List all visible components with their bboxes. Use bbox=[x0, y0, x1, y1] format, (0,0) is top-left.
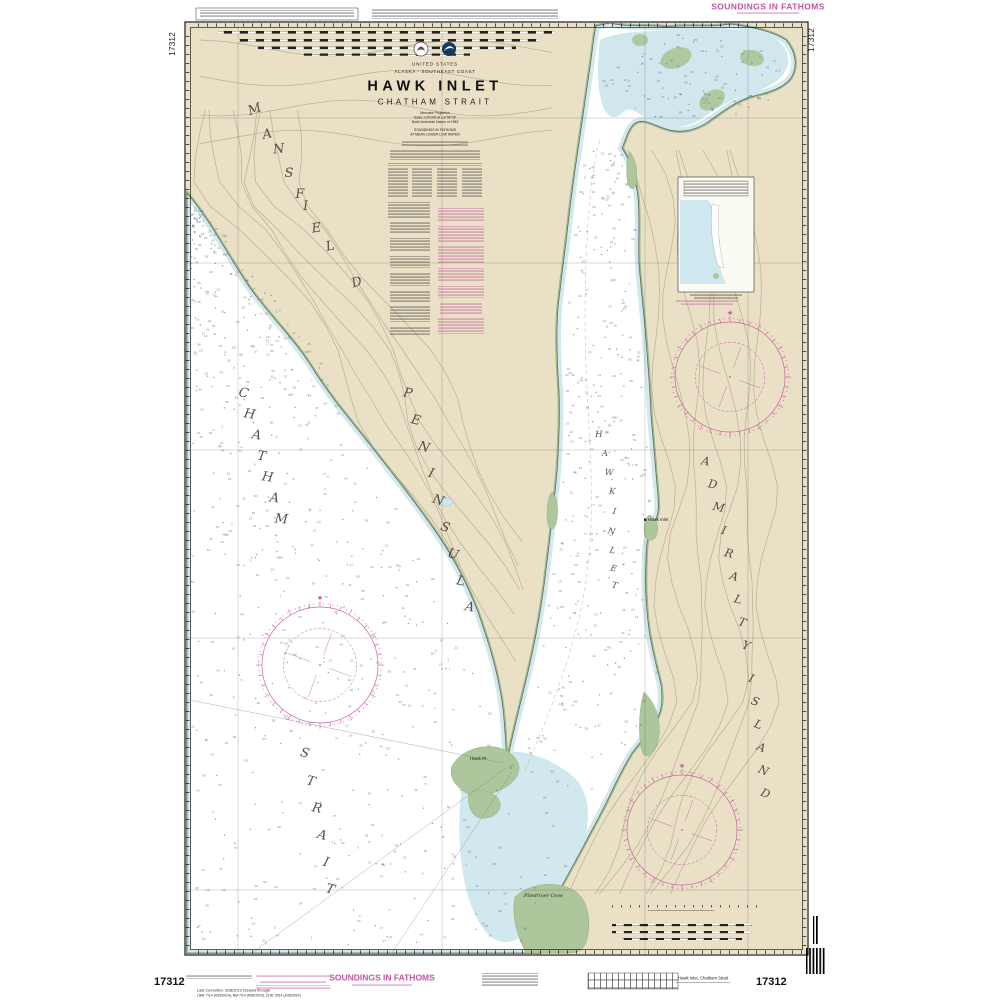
sounding: 34 bbox=[312, 581, 316, 585]
sounding bbox=[293, 478, 294, 479]
sounding bbox=[233, 367, 234, 368]
sounding bbox=[194, 301, 195, 302]
sounding: 42 bbox=[433, 692, 437, 696]
sounding: 13 bbox=[592, 654, 596, 658]
sounding bbox=[558, 688, 559, 689]
sounding bbox=[405, 871, 406, 872]
sounding bbox=[235, 714, 236, 715]
sounding: 60 bbox=[356, 574, 360, 578]
sounding: 44 bbox=[214, 295, 218, 299]
sounding: 42 bbox=[724, 82, 728, 86]
sounding bbox=[369, 804, 370, 805]
sounding bbox=[200, 324, 201, 325]
sounding bbox=[580, 727, 581, 728]
sounding: 26 bbox=[566, 389, 570, 393]
sounding: 16 bbox=[199, 213, 203, 217]
sounding: 48 bbox=[195, 886, 199, 890]
sounding: 43 bbox=[243, 295, 247, 299]
sounding: 37 bbox=[333, 814, 337, 818]
sounding bbox=[199, 218, 200, 219]
sounding: 32 bbox=[271, 375, 275, 379]
sounding: 31 bbox=[307, 420, 311, 424]
sounding: 53 bbox=[202, 937, 206, 941]
sounding bbox=[472, 673, 473, 674]
sounding: 14 bbox=[379, 874, 383, 878]
sounding: 35 bbox=[336, 411, 340, 415]
sounding: 28 bbox=[748, 94, 752, 98]
sounding bbox=[628, 634, 629, 635]
sounding: 11 bbox=[310, 543, 313, 547]
sounding: 38 bbox=[227, 359, 231, 363]
sounding: 19 bbox=[700, 49, 704, 53]
sounding bbox=[326, 878, 327, 879]
sounding bbox=[634, 709, 635, 710]
sounding: 20 bbox=[242, 306, 246, 310]
sounding bbox=[568, 435, 569, 436]
sounding: 28 bbox=[603, 529, 607, 533]
sounding bbox=[610, 160, 611, 161]
sounding bbox=[289, 502, 290, 503]
sounding bbox=[625, 457, 626, 458]
sounding bbox=[347, 944, 348, 945]
sounding: 60 bbox=[340, 642, 344, 646]
sounding: 44 bbox=[616, 66, 620, 70]
sounding: 35 bbox=[205, 903, 209, 907]
sounding: 51 bbox=[396, 693, 400, 697]
sounding: 29 bbox=[237, 269, 241, 273]
sounding: 41 bbox=[206, 328, 210, 332]
sounding: 30 bbox=[211, 239, 215, 243]
sounding: 58 bbox=[641, 61, 645, 65]
sounding bbox=[400, 843, 401, 844]
sounding bbox=[362, 678, 363, 679]
sounding: 10 bbox=[206, 291, 210, 295]
sounding bbox=[251, 918, 252, 919]
sounding: 21 bbox=[359, 743, 363, 747]
sounding bbox=[315, 702, 316, 703]
sounding: 26 bbox=[307, 342, 311, 346]
sounding: 3 bbox=[275, 309, 277, 313]
sounding: 1 bbox=[295, 551, 297, 555]
geo-letter: A bbox=[268, 490, 280, 506]
sounding: 50 bbox=[591, 176, 595, 180]
sounding: 40 bbox=[209, 270, 213, 274]
sounding bbox=[210, 248, 211, 249]
sounding: 56 bbox=[569, 680, 573, 684]
sounding bbox=[269, 406, 270, 407]
sounding: 20 bbox=[608, 152, 612, 156]
sounding: 55 bbox=[694, 38, 698, 42]
inset-table bbox=[684, 181, 748, 196]
sounding: 60 bbox=[560, 694, 564, 698]
sounding bbox=[334, 843, 335, 844]
sounding bbox=[343, 606, 344, 607]
sounding bbox=[432, 823, 433, 824]
sounding: 31 bbox=[588, 350, 592, 354]
sounding bbox=[255, 698, 256, 699]
sounding bbox=[347, 542, 348, 543]
sounding: 24 bbox=[388, 565, 392, 569]
sounding: 22 bbox=[451, 876, 455, 880]
sounding: 20 bbox=[581, 270, 585, 274]
sounding: 52 bbox=[212, 324, 216, 328]
chart-number-bottom-right: 17312 bbox=[756, 976, 787, 988]
sounding bbox=[598, 411, 599, 412]
sounding bbox=[412, 560, 413, 561]
sounding bbox=[250, 296, 251, 297]
sounding bbox=[215, 613, 216, 614]
sounding: 15 bbox=[570, 491, 574, 495]
sounding: 5 bbox=[588, 460, 590, 464]
sounding: 49 bbox=[233, 735, 237, 739]
marsh-patch bbox=[632, 34, 648, 46]
sounding: 42 bbox=[608, 347, 612, 351]
sounding bbox=[534, 887, 535, 888]
sounding bbox=[292, 369, 293, 370]
sounding bbox=[238, 442, 239, 443]
sounding: 26 bbox=[453, 854, 457, 858]
sounding bbox=[224, 337, 225, 338]
sounding bbox=[586, 289, 587, 290]
sounding: 36 bbox=[349, 734, 353, 738]
note-paragraph bbox=[390, 326, 430, 336]
sounding: 13 bbox=[227, 471, 231, 475]
sounding: 10 bbox=[328, 659, 332, 663]
sounding bbox=[286, 718, 287, 719]
sounding bbox=[589, 168, 590, 169]
sounding: 13 bbox=[284, 482, 288, 486]
sounding bbox=[207, 375, 208, 376]
sounding: 57 bbox=[313, 887, 317, 891]
sounding: 19 bbox=[583, 163, 587, 167]
geo-letter: W bbox=[605, 468, 615, 478]
sounding bbox=[287, 473, 288, 474]
sounding: 12 bbox=[266, 353, 270, 357]
sounding: 60 bbox=[616, 176, 620, 180]
sounding bbox=[655, 116, 656, 117]
sounding: 13 bbox=[249, 517, 253, 521]
sounding bbox=[191, 256, 192, 257]
sounding: 18 bbox=[452, 904, 456, 908]
sounding: 23 bbox=[215, 227, 219, 231]
sounding bbox=[362, 548, 363, 549]
sounding bbox=[323, 661, 324, 662]
sounding bbox=[251, 936, 252, 937]
sounding bbox=[262, 549, 263, 550]
sounding bbox=[323, 622, 324, 623]
sounding: 24 bbox=[320, 378, 324, 382]
sounding: 31 bbox=[621, 631, 625, 635]
sounding bbox=[622, 357, 623, 358]
sounding: 35 bbox=[673, 95, 677, 99]
sounding: 56 bbox=[658, 71, 662, 75]
geo-letter: K bbox=[608, 487, 617, 498]
sounding: 42 bbox=[195, 261, 199, 265]
sounding bbox=[215, 307, 216, 308]
sounding: 11 bbox=[312, 384, 315, 388]
sounding bbox=[399, 566, 400, 567]
sounding bbox=[583, 681, 584, 682]
sounding: 33 bbox=[200, 407, 204, 411]
sounding: 37 bbox=[335, 736, 339, 740]
sounding: 15 bbox=[484, 924, 488, 928]
note-paragraph bbox=[438, 226, 484, 242]
sounding bbox=[572, 705, 573, 706]
sounding: 50 bbox=[503, 891, 507, 895]
sounding: 6 bbox=[224, 353, 226, 357]
sounding bbox=[593, 384, 594, 385]
sounding bbox=[593, 175, 594, 176]
sounding: 59 bbox=[261, 396, 265, 400]
sounding bbox=[435, 650, 436, 651]
sounding: 4 bbox=[192, 554, 194, 558]
sounding bbox=[403, 671, 404, 672]
sounding: 55 bbox=[279, 556, 283, 560]
sounding: 40 bbox=[199, 435, 203, 439]
sounding bbox=[601, 247, 602, 248]
sounding: 58 bbox=[523, 927, 527, 931]
sounding: 18 bbox=[256, 701, 260, 705]
sounding: 9 bbox=[381, 834, 383, 838]
sounding bbox=[600, 386, 601, 387]
sounding: 18 bbox=[265, 524, 269, 528]
sounding bbox=[279, 382, 280, 383]
sounding: 24 bbox=[608, 203, 612, 207]
sounding: 15 bbox=[601, 151, 605, 155]
sounding: 48 bbox=[622, 608, 626, 612]
sounding bbox=[586, 561, 587, 562]
sounding bbox=[574, 540, 575, 541]
sounding: 15 bbox=[605, 197, 609, 201]
sounding bbox=[307, 438, 308, 439]
sounding: 18 bbox=[629, 379, 633, 383]
sounding: 55 bbox=[270, 349, 274, 353]
sounding: 9 bbox=[644, 94, 646, 98]
sounding: 7 bbox=[634, 106, 636, 110]
sounding: 39 bbox=[573, 470, 577, 474]
sounding bbox=[607, 250, 608, 251]
sounding: 19 bbox=[594, 623, 598, 627]
sounding bbox=[278, 452, 279, 453]
sounding: 11 bbox=[454, 645, 457, 649]
sounding bbox=[601, 254, 602, 255]
sounding bbox=[605, 420, 606, 421]
sounding: 38 bbox=[617, 665, 621, 669]
sounding bbox=[233, 696, 234, 697]
sounding bbox=[192, 443, 193, 444]
sounding bbox=[376, 497, 377, 498]
sounding bbox=[193, 279, 194, 280]
sounding: 32 bbox=[198, 243, 202, 247]
sounding: 2 bbox=[311, 378, 313, 382]
magenta-note bbox=[676, 300, 738, 302]
chart-subtitle: CHATHAM STRAIT bbox=[378, 98, 492, 107]
sounding bbox=[225, 241, 226, 242]
sounding: 3 bbox=[280, 345, 282, 349]
sounding bbox=[381, 567, 382, 568]
sounding bbox=[216, 775, 217, 776]
sounding bbox=[332, 841, 333, 842]
sounding bbox=[543, 645, 544, 646]
sounding bbox=[355, 502, 356, 503]
sounding bbox=[387, 789, 388, 790]
sounding: 31 bbox=[262, 938, 266, 942]
sounding bbox=[688, 104, 689, 105]
sounding bbox=[624, 744, 625, 745]
sounding: 54 bbox=[274, 885, 278, 889]
sounding bbox=[735, 113, 736, 114]
sounding bbox=[212, 811, 213, 812]
sounding: 42 bbox=[370, 565, 374, 569]
note-paragraph bbox=[388, 163, 482, 166]
sounding: 41 bbox=[273, 299, 277, 303]
sounding: 31 bbox=[475, 884, 479, 888]
sounding bbox=[385, 754, 386, 755]
rose-star-icon: ★ bbox=[727, 309, 733, 317]
sounding bbox=[441, 668, 442, 669]
sounding: 56 bbox=[628, 357, 632, 361]
sounding: 59 bbox=[324, 595, 328, 599]
sounding: 25 bbox=[252, 345, 256, 349]
sounding: 51 bbox=[350, 659, 354, 663]
sounding bbox=[614, 421, 615, 422]
sounding bbox=[348, 855, 349, 856]
sounding: 48 bbox=[236, 563, 240, 567]
sounding bbox=[286, 353, 287, 354]
sounding bbox=[404, 616, 405, 617]
sounding bbox=[222, 426, 223, 427]
sounding bbox=[247, 279, 248, 280]
sounding: 42 bbox=[684, 80, 688, 84]
sounding: 28 bbox=[609, 692, 613, 696]
sounding: 1 bbox=[614, 449, 616, 453]
sounding: 34 bbox=[643, 468, 647, 472]
sounding: 12 bbox=[590, 447, 594, 451]
sounding: 37 bbox=[594, 612, 598, 616]
point-label: Hawk Pt bbox=[470, 756, 487, 761]
sounding: 42 bbox=[232, 647, 236, 651]
sounding: 27 bbox=[270, 343, 274, 347]
sounding: 10 bbox=[408, 703, 412, 707]
sounding: 19 bbox=[569, 430, 573, 434]
sounding bbox=[339, 828, 340, 829]
sounding bbox=[712, 110, 713, 111]
sounding bbox=[337, 678, 338, 679]
sounding: 27 bbox=[576, 554, 580, 558]
sounding bbox=[249, 829, 250, 830]
sounding: 11 bbox=[559, 702, 562, 706]
sounding bbox=[213, 472, 214, 473]
sounding: 14 bbox=[221, 233, 225, 237]
sounding: 10 bbox=[236, 504, 240, 508]
sounding bbox=[326, 575, 327, 576]
sounding: 32 bbox=[633, 560, 637, 564]
sounding: 3 bbox=[280, 593, 282, 597]
sounding: 20 bbox=[323, 492, 327, 496]
sounding: 45 bbox=[396, 564, 400, 568]
sounding bbox=[585, 478, 586, 479]
sounding: 29 bbox=[631, 237, 635, 241]
sounding bbox=[575, 603, 576, 604]
sounding: 1 bbox=[638, 642, 640, 646]
sounding: 58 bbox=[573, 611, 577, 615]
sounding bbox=[425, 783, 426, 784]
sounding: 15 bbox=[558, 579, 562, 583]
sounding: 5 bbox=[641, 598, 643, 602]
sounding: 58 bbox=[647, 97, 651, 101]
sounding: 13 bbox=[631, 608, 635, 612]
sounding bbox=[577, 317, 578, 318]
sounding: 55 bbox=[388, 669, 392, 673]
sounding bbox=[276, 436, 277, 437]
sounding bbox=[615, 662, 616, 663]
sounding bbox=[200, 236, 201, 237]
sounding: 20 bbox=[265, 311, 269, 315]
point-label: Hawk Inlet bbox=[648, 517, 669, 522]
sounding: 8 bbox=[602, 196, 604, 200]
sounding bbox=[243, 639, 244, 640]
sounding: 42 bbox=[260, 297, 264, 301]
sounding bbox=[200, 287, 201, 288]
sounding: 20 bbox=[613, 374, 617, 378]
sounding bbox=[587, 516, 588, 517]
sounding bbox=[577, 553, 578, 554]
sounding: 56 bbox=[539, 739, 543, 743]
sounding: 22 bbox=[559, 547, 563, 551]
sounding bbox=[274, 378, 275, 379]
sounding bbox=[573, 334, 574, 335]
geo-letter: S bbox=[285, 166, 294, 181]
sounding: 19 bbox=[213, 332, 217, 336]
sounding: 55 bbox=[543, 796, 547, 800]
sounding bbox=[234, 408, 235, 409]
sounding bbox=[197, 319, 198, 320]
sounding: 28 bbox=[191, 609, 195, 613]
sounding bbox=[599, 694, 600, 695]
sounding: 22 bbox=[254, 897, 258, 901]
sounding bbox=[423, 808, 424, 809]
sounding: 38 bbox=[624, 720, 628, 724]
sounding: 41 bbox=[205, 738, 209, 742]
barcode-strip bbox=[813, 916, 819, 944]
sounding bbox=[211, 386, 212, 387]
sounding bbox=[614, 181, 615, 182]
note-paragraph bbox=[390, 256, 430, 268]
sounding: 40 bbox=[371, 823, 375, 827]
sounding bbox=[579, 396, 580, 397]
sounding: 12 bbox=[313, 529, 317, 533]
sounding bbox=[259, 337, 260, 338]
sounding: 32 bbox=[208, 230, 212, 234]
sounding: 11 bbox=[593, 213, 596, 217]
soundings-banner-top: SOUNDINGS IN FATHOMS bbox=[711, 2, 825, 12]
sounding: 5 bbox=[614, 242, 616, 246]
sounding: 31 bbox=[220, 441, 224, 445]
sounding: 36 bbox=[350, 688, 354, 692]
imprint-block bbox=[482, 973, 538, 987]
sounding: 22 bbox=[299, 801, 303, 805]
sounding: 47 bbox=[546, 856, 550, 860]
sounding: 34 bbox=[323, 401, 327, 405]
sounding: 34 bbox=[545, 811, 549, 815]
projection-line: North American Datum of 1983 bbox=[412, 120, 459, 124]
sounding: 36 bbox=[636, 354, 640, 358]
sounding: 54 bbox=[229, 529, 233, 533]
sounding bbox=[629, 349, 630, 350]
sounding: 12 bbox=[543, 873, 547, 877]
sounding: 9 bbox=[196, 368, 198, 372]
sounding bbox=[593, 504, 594, 505]
